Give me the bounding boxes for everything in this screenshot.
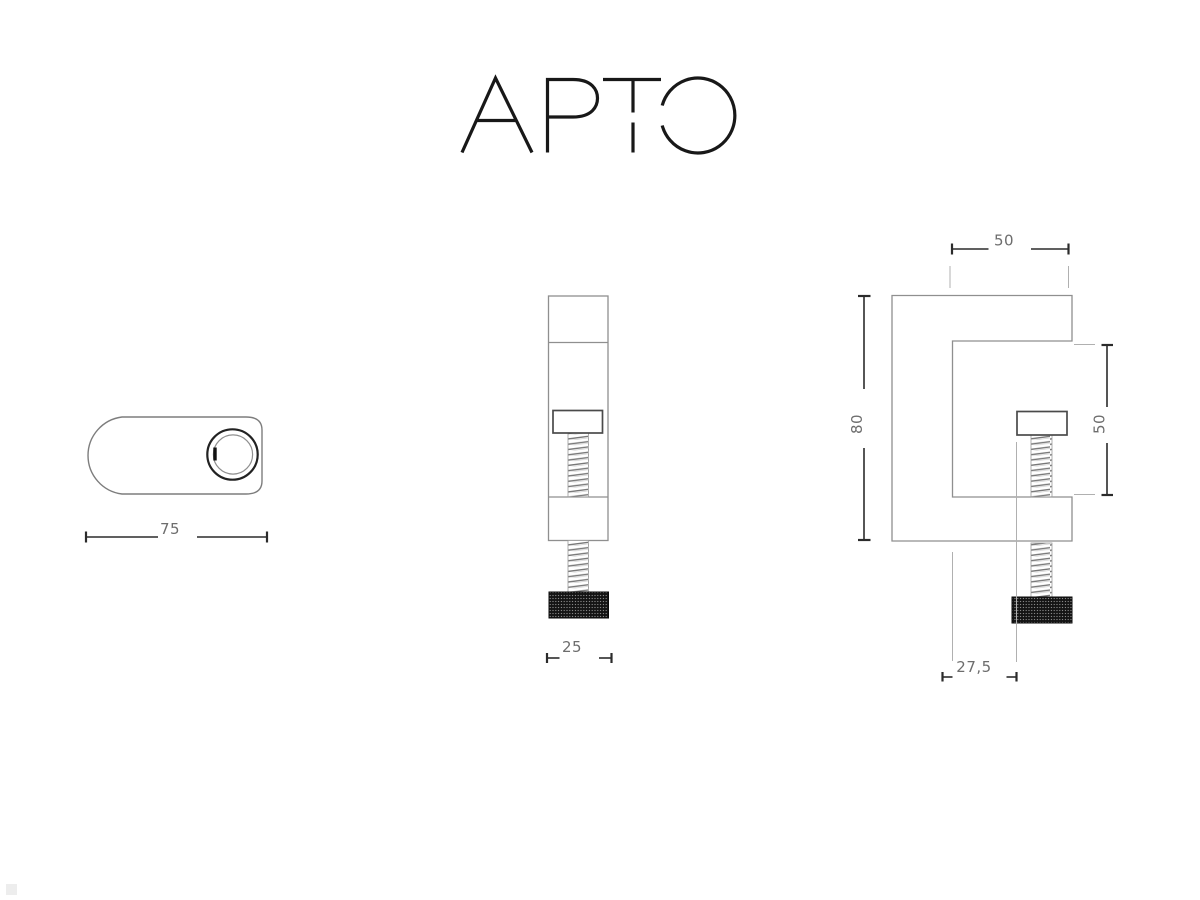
screw-head-side <box>1017 412 1067 436</box>
dimension-label-arm-length: 50 <box>994 232 1014 250</box>
logo-letter-o <box>662 78 735 153</box>
cylinder-top-view: 75 <box>86 417 267 543</box>
screw-thread-lower-side <box>1031 543 1052 597</box>
corner-artifact-square <box>6 884 17 895</box>
dimension-label-height: 80 <box>848 414 866 434</box>
dimension-50-top: 50 <box>950 232 1069 289</box>
thumb-knob-side <box>1012 597 1072 623</box>
drawing-canvas: APTO <box>0 0 1200 900</box>
screw-thread-upper <box>568 433 589 497</box>
product-technical-drawing: APTO <box>0 0 1200 900</box>
logo-letter-a <box>462 78 532 153</box>
dimension-label-width: 25 <box>562 638 582 656</box>
screw-head <box>553 411 603 434</box>
clamp-front-view: 25 <box>547 296 612 663</box>
dimension-label-opening-height: 50 <box>1091 414 1109 434</box>
screw-thread-upper-side <box>1031 435 1052 497</box>
clamp-side-view: 50 80 50 <box>848 232 1113 682</box>
logo-letter-t <box>603 80 661 153</box>
screw-thread-lower <box>568 541 589 593</box>
thumb-knob <box>549 592 609 618</box>
dimension-label-screw-offset: 27,5 <box>956 658 991 676</box>
dimension-label-length: 75 <box>160 520 180 538</box>
dimension-27-5: 27,5 <box>943 442 1017 682</box>
logo-letter-p <box>548 80 598 153</box>
apto-logo <box>462 78 735 153</box>
dimension-50-opening: 50 <box>1074 345 1113 496</box>
